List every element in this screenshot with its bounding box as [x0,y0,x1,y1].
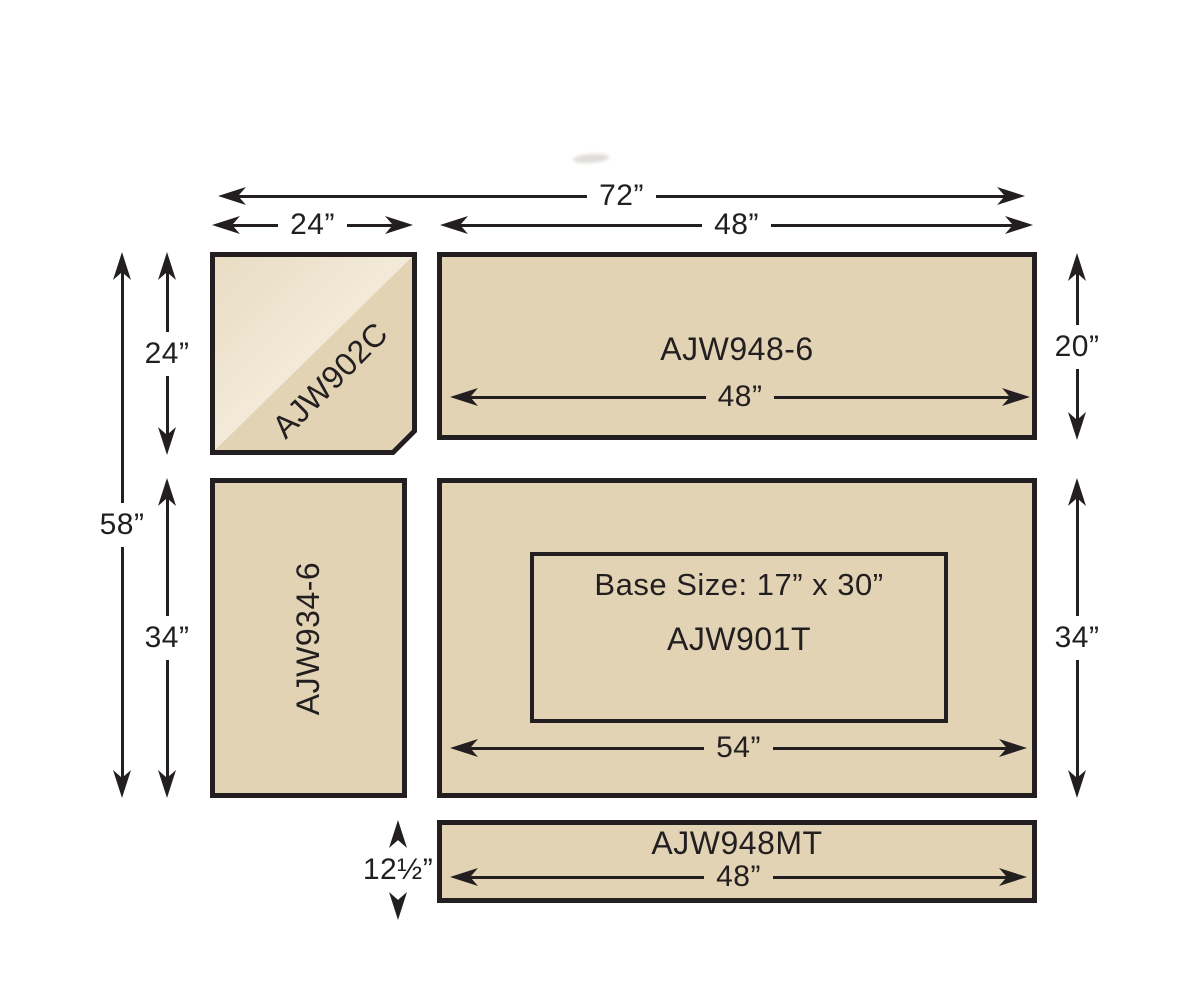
dim-line-segment [771,224,1014,227]
dim-line-segment [1076,272,1079,325]
dim-return-height: 34” [147,478,187,798]
dim-line-segment [459,224,702,227]
dim-hutch-height: 20” [1057,253,1097,440]
dim-hutch-inner-width-label: 48” [706,380,775,414]
dim-desk-inner-width: 54” [450,730,1027,766]
desk-base-size-label: Base Size: 17” x 30” [534,568,944,602]
dim-line-segment [121,547,124,779]
dim-desk-height: 34” [1057,478,1097,798]
dim-modesty-height-label: 12½” [363,848,433,892]
desk-piece-label: AJW901T [534,622,944,656]
dim-line-segment [231,224,278,227]
dim-line-segment [166,497,169,616]
dim-line-segment [469,876,704,879]
print-smudge-artifact [573,153,610,164]
dim-line-segment [773,876,1008,879]
diagram-stage: 72” 24” 48” 58” 24” 34” [0,0,1200,1000]
dim-modesty-inner-width-label: 48” [704,860,773,894]
dim-line-segment [1076,660,1079,779]
return-piece: AJW934-6 [210,478,407,798]
dim-line-segment [166,376,169,437]
dim-modesty-inner-width: 48” [450,859,1027,895]
dim-line-segment [166,660,169,779]
desk-base-outline: Base Size: 17” x 30” AJW901T [530,552,948,723]
arrowhead-up-icon [389,820,407,848]
dim-corner-width-label: 24” [278,208,347,242]
dim-desk-inner-width-label: 54” [704,731,773,765]
dim-corner-height-label: 24” [145,332,190,376]
dim-line-segment [237,195,587,198]
dim-line-segment [773,747,1008,750]
return-piece-label: AJW934-6 [290,561,327,714]
dim-line-segment [1076,369,1079,422]
hutch-piece: AJW948-6 48” [437,252,1037,440]
dim-modesty-height: 12½” [378,820,418,904]
dim-corner-height: 24” [147,252,187,455]
dim-line-segment [656,195,1006,198]
dim-hutch-height-label: 20” [1055,325,1100,369]
dim-left-total-height: 58” [102,252,142,798]
corner-piece: AJW902C [210,252,417,455]
dim-line-segment [469,747,704,750]
modesty-piece-label: AJW948MT [442,826,1032,860]
dim-line-segment [121,271,124,503]
dim-line-segment [1076,497,1079,616]
dim-hutch-top-width: 48” [440,207,1033,243]
hutch-piece-label: AJW948-6 [442,332,1032,366]
dim-return-height-label: 34” [145,616,190,660]
dim-line-segment [469,396,706,399]
dim-desk-height-label: 34” [1055,616,1100,660]
dim-line-segment [774,396,1011,399]
modesty-piece: AJW948MT 48” [437,820,1037,903]
dim-line-segment [166,271,169,332]
dim-corner-width: 24” [212,207,413,243]
dim-hutch-top-width-label: 48” [702,208,771,242]
desk-piece: Base Size: 17” x 30” AJW901T 54” [437,478,1037,798]
dim-left-total-height-label: 58” [100,503,145,547]
dim-hutch-inner-width: 48” [450,379,1030,415]
arrowhead-down-icon [389,892,407,920]
dim-line-segment [347,224,394,227]
